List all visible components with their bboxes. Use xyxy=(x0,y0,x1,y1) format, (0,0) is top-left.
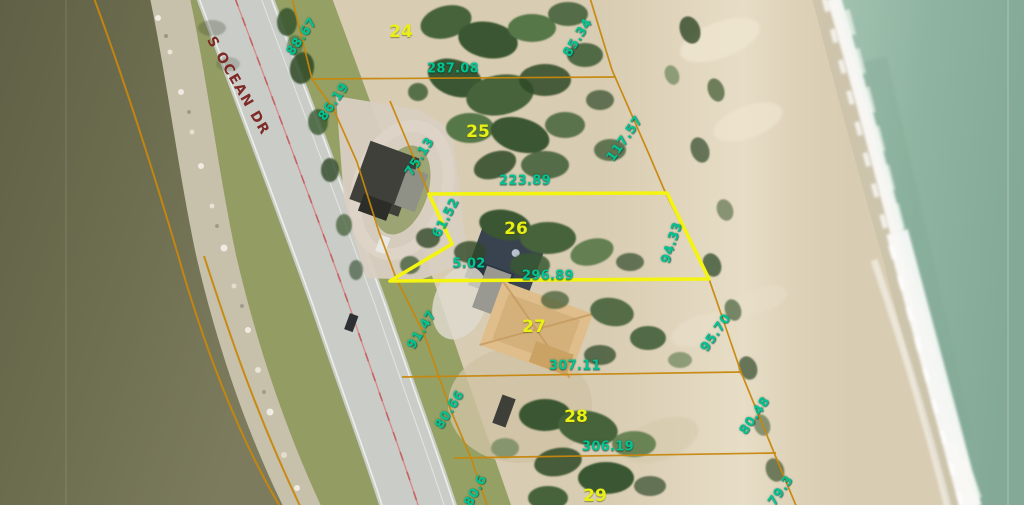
aerial-imagery xyxy=(0,0,1024,505)
aerial-map-view[interactable]: S OCEAN DR 88.6786.19287.0885.34117.5775… xyxy=(0,0,1024,505)
